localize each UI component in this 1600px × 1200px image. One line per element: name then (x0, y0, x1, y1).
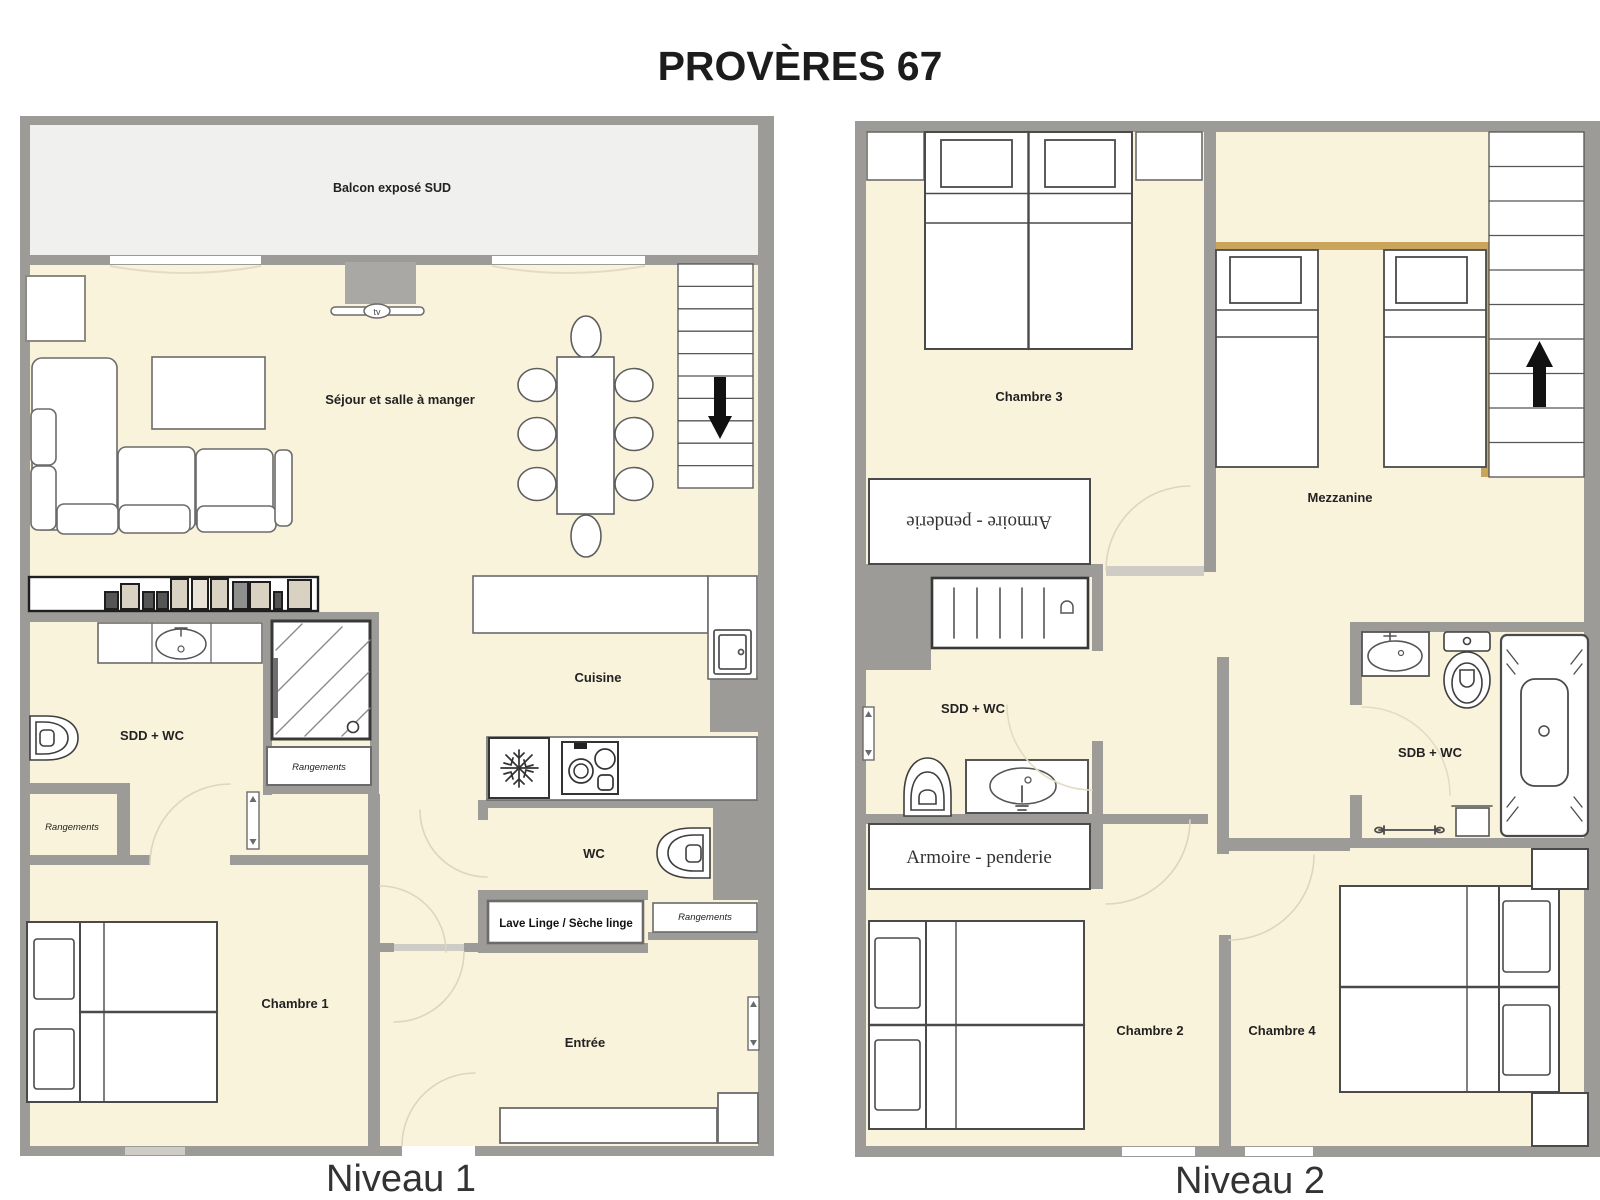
svg-text:Rangements: Rangements (292, 762, 346, 773)
svg-text:Rangements: Rangements (45, 822, 99, 833)
svg-text:Mezzanine: Mezzanine (1307, 490, 1372, 505)
svg-text:Balcon exposé SUD: Balcon exposé SUD (333, 181, 451, 195)
svg-text:Niveau 1: Niveau 1 (326, 1158, 476, 1200)
svg-text:Cuisine: Cuisine (575, 670, 622, 685)
svg-text:SDD + WC: SDD + WC (941, 701, 1006, 716)
svg-text:Lave Linge / Sèche linge: Lave Linge / Sèche linge (499, 918, 633, 930)
svg-text:Chambre 4: Chambre 4 (1248, 1023, 1316, 1038)
svg-text:Armoire - penderie: Armoire - penderie (906, 512, 1052, 533)
svg-text:Séjour et salle à manger: Séjour et salle à manger (325, 392, 475, 407)
svg-text:WC: WC (583, 846, 605, 861)
svg-text:PROVÈRES 67: PROVÈRES 67 (658, 43, 943, 89)
svg-text:Chambre 3: Chambre 3 (995, 389, 1062, 404)
svg-text:Armoire - penderie: Armoire - penderie (906, 847, 1052, 868)
svg-text:SDB + WC: SDB + WC (1398, 745, 1463, 760)
svg-text:Chambre 1: Chambre 1 (261, 996, 328, 1011)
svg-text:SDD + WC: SDD + WC (120, 728, 185, 743)
svg-text:Niveau 2: Niveau 2 (1175, 1160, 1325, 1200)
svg-text:Entrée: Entrée (565, 1035, 605, 1050)
svg-text:Rangements: Rangements (678, 912, 732, 923)
svg-text:Chambre 2: Chambre 2 (1116, 1023, 1183, 1038)
svg-text:tv: tv (373, 307, 381, 317)
